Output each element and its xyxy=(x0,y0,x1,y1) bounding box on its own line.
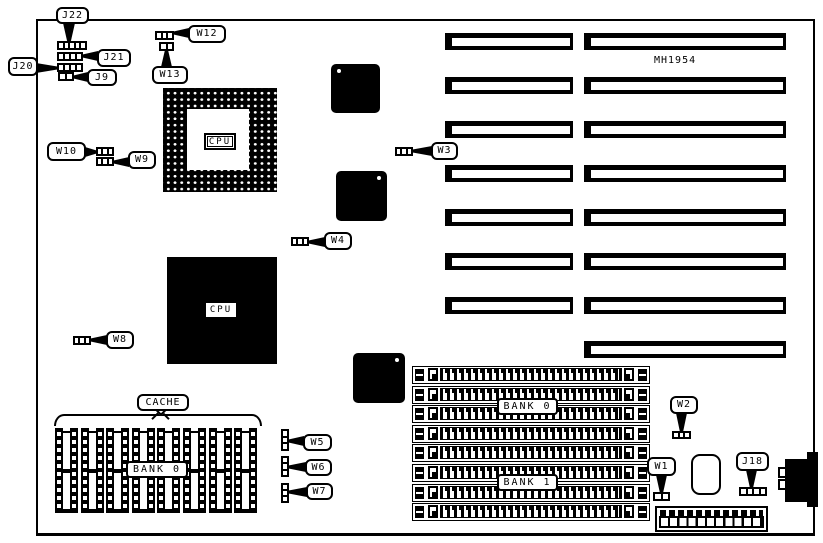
jumper-header-j20 xyxy=(57,63,83,72)
simm-bank0-label: BANK 0 xyxy=(497,398,558,415)
jumper-label-j18: J18 xyxy=(736,452,769,471)
isa-slot-left-6 xyxy=(445,253,573,270)
simm-latch xyxy=(428,368,438,381)
jumper-pin xyxy=(161,44,166,49)
jumper-pin xyxy=(109,159,112,164)
cache-bank0-label: BANK 0 xyxy=(126,461,188,478)
ic-chip-2 xyxy=(336,171,387,221)
jumper-pin xyxy=(168,44,173,49)
part-number: MH1954 xyxy=(654,55,714,67)
isa-slot-right-3 xyxy=(584,121,786,138)
isa-slot-right-1 xyxy=(584,33,786,50)
simm-pin-block xyxy=(638,428,647,440)
jumper-header-w2 xyxy=(672,431,691,439)
jumper-header-w12 xyxy=(155,31,174,40)
jumper-pin xyxy=(71,65,75,70)
simm-socket-4 xyxy=(412,425,650,443)
jumper-pin xyxy=(283,491,287,495)
keyboard-connector-tab xyxy=(778,467,787,478)
jumper-pin xyxy=(70,43,74,48)
isa-slot-left-4 xyxy=(445,165,573,182)
cache-brace xyxy=(54,414,262,426)
jumper-pin xyxy=(98,159,101,164)
simm-contacts xyxy=(440,427,622,440)
simm-latch xyxy=(428,427,438,440)
jumper-pin xyxy=(77,54,81,59)
simm-latch xyxy=(428,466,438,479)
ic-chip-1 xyxy=(331,64,380,113)
jumper-label-w7: W7 xyxy=(306,483,333,500)
jumper-pin xyxy=(163,33,167,38)
isa-slot-left-2 xyxy=(445,77,573,94)
jumper-label-w1: W1 xyxy=(647,457,676,476)
simm-latch xyxy=(428,505,438,518)
simm-latch xyxy=(624,446,634,459)
simm-latch xyxy=(624,368,634,381)
jumper-label-w2: W2 xyxy=(670,396,698,414)
simm-socket-5 xyxy=(412,444,650,462)
simm-latch xyxy=(624,505,634,518)
jumper-label-w5: W5 xyxy=(303,434,332,451)
jumper-pin xyxy=(103,149,106,154)
isa-slot-right-7 xyxy=(584,297,786,314)
keyboard-connector-shell xyxy=(807,452,818,507)
jumper-label-j20: J20 xyxy=(8,57,38,76)
isa-slot-left-5 xyxy=(445,209,573,226)
isa-slot-right-4 xyxy=(584,165,786,182)
jumper-pin xyxy=(748,489,753,494)
jumper-pin xyxy=(663,494,669,499)
isa-slot-right-8 xyxy=(584,341,786,358)
simm-contacts xyxy=(440,505,622,518)
jumper-pin xyxy=(408,149,411,154)
simm-latch xyxy=(624,427,634,440)
jumper-pin xyxy=(283,458,287,462)
power-connector-sockets xyxy=(659,516,764,528)
jumper-label-w6: W6 xyxy=(305,459,332,476)
jumper-header-w4 xyxy=(291,237,309,246)
simm-contacts xyxy=(440,446,622,459)
jumper-pin xyxy=(75,338,78,343)
jumper-pin xyxy=(59,54,63,59)
simm-pin-block xyxy=(638,506,647,518)
simm-pin-block xyxy=(638,389,647,401)
jumper-pin xyxy=(109,149,112,154)
pin1-dot xyxy=(395,358,399,362)
power-connector xyxy=(655,506,768,532)
jumper-label-w12: W12 xyxy=(188,25,226,43)
jumper-pin xyxy=(86,338,89,343)
cache-chip-2 xyxy=(81,428,104,513)
simm-latch xyxy=(624,466,634,479)
simm-pin-block xyxy=(415,447,424,459)
simm-contacts xyxy=(440,368,622,381)
simm-pin-block xyxy=(638,369,647,381)
isa-slot-right-2 xyxy=(584,77,786,94)
simm-latch xyxy=(428,486,438,499)
jumper-pin xyxy=(655,494,661,499)
jumper-pin xyxy=(402,149,405,154)
jumper-pin xyxy=(397,149,400,154)
jumper-pin xyxy=(283,464,287,468)
simm-socket-1 xyxy=(412,366,650,384)
jumper-pin xyxy=(80,338,83,343)
simm-pin-block xyxy=(415,369,424,381)
simm-latch xyxy=(428,388,438,401)
simm-pin-block xyxy=(415,428,424,440)
jumper-label-j22: J22 xyxy=(56,7,89,24)
simm-pin-block xyxy=(415,389,424,401)
jumper-label-w9: W9 xyxy=(128,151,156,169)
jumper-header-j18 xyxy=(739,487,767,496)
jumper-header-w8 xyxy=(73,336,91,345)
jumper-pin xyxy=(59,43,63,48)
jumper-header-j21 xyxy=(57,52,83,61)
jumper-pin xyxy=(103,159,106,164)
pin1-dot xyxy=(377,176,381,180)
jumper-pin xyxy=(298,239,301,244)
jumper-pin xyxy=(157,33,161,38)
cache-label: CACHE xyxy=(137,394,189,411)
simm-latch xyxy=(428,446,438,459)
simm-pin-block xyxy=(415,487,424,499)
jumper-label-w8: W8 xyxy=(106,331,134,349)
jumper-pin xyxy=(283,485,287,489)
jumper-pin xyxy=(293,239,296,244)
simm-pin-block xyxy=(415,467,424,479)
simm-pin-block xyxy=(415,506,424,518)
jumper-pin xyxy=(761,489,766,494)
jumper-pin xyxy=(60,74,65,79)
jumper-pin xyxy=(754,489,759,494)
jumper-pin xyxy=(65,65,69,70)
keyboard-connector-tab xyxy=(778,479,787,490)
jumper-pin xyxy=(65,43,69,48)
jumper-header-w13 xyxy=(159,42,174,51)
cache-chip-1 xyxy=(55,428,78,513)
simm-pin-block xyxy=(638,447,647,459)
cache-chip-8 xyxy=(234,428,257,513)
jumper-label-w4: W4 xyxy=(324,232,352,250)
jumper-pin xyxy=(680,433,684,437)
cache-chip-7 xyxy=(209,428,232,513)
jumper-pin xyxy=(67,74,72,79)
jumper-label-w13: W13 xyxy=(152,66,188,84)
jumper-pin xyxy=(283,444,287,449)
cpu-socket-label: CPU xyxy=(204,133,236,150)
jumper-pin xyxy=(81,43,85,48)
simm-latch xyxy=(624,486,634,499)
simm-socket-8 xyxy=(412,503,650,521)
isa-slot-left-3 xyxy=(445,121,573,138)
jumper-pin xyxy=(65,54,69,59)
simm-pin-block xyxy=(638,467,647,479)
jumper-pin xyxy=(283,471,287,475)
jumper-header-w1 xyxy=(653,492,670,501)
jumper-pin xyxy=(674,433,678,437)
simm-latch xyxy=(624,407,634,420)
simm-latch xyxy=(428,407,438,420)
isa-slot-right-5 xyxy=(584,209,786,226)
ic-chip-3 xyxy=(353,353,405,403)
jumper-header-w10 xyxy=(96,147,114,156)
jumper-pin xyxy=(98,149,101,154)
jumper-pin xyxy=(741,489,746,494)
jumper-pin xyxy=(59,65,63,70)
jumper-label-w10: W10 xyxy=(47,142,86,161)
battery-outline xyxy=(691,454,721,495)
simm-pin-block xyxy=(638,487,647,499)
jumper-pin xyxy=(685,433,689,437)
jumper-header-w7 xyxy=(281,483,289,503)
isa-slot-right-6 xyxy=(584,253,786,270)
jumper-pin xyxy=(77,65,81,70)
jumper-pin xyxy=(76,43,80,48)
jumper-pin xyxy=(304,239,307,244)
jumper-pin xyxy=(168,33,172,38)
isa-slot-left-7 xyxy=(445,297,573,314)
jumper-pin xyxy=(283,497,287,501)
jumper-label-j9: J9 xyxy=(87,69,117,86)
jumper-header-w5 xyxy=(281,429,289,451)
simm-latch xyxy=(624,388,634,401)
jumper-header-w3 xyxy=(395,147,413,156)
simm-pin-block xyxy=(638,408,647,420)
jumper-label-w3: W3 xyxy=(431,142,458,160)
jumper-header-w9 xyxy=(96,157,114,166)
simm-bank1-label: BANK 1 xyxy=(497,474,558,491)
jumper-pin xyxy=(71,54,75,59)
pin1-dot xyxy=(337,69,341,73)
jumper-label-j21: J21 xyxy=(97,49,131,67)
jumper-header-j9 xyxy=(58,72,74,81)
cpu-chip-label: CPU xyxy=(205,302,237,318)
jumper-header-j22 xyxy=(57,41,87,50)
jumper-pin xyxy=(283,438,287,443)
jumper-header-w6 xyxy=(281,456,289,477)
jumper-pin xyxy=(283,431,287,436)
isa-slot-left-1 xyxy=(445,33,573,50)
motherboard-diagram: MH1954 CPU CPU CACHE BANK 0 BANK 0 BANK … xyxy=(0,0,823,543)
simm-pin-block xyxy=(415,408,424,420)
